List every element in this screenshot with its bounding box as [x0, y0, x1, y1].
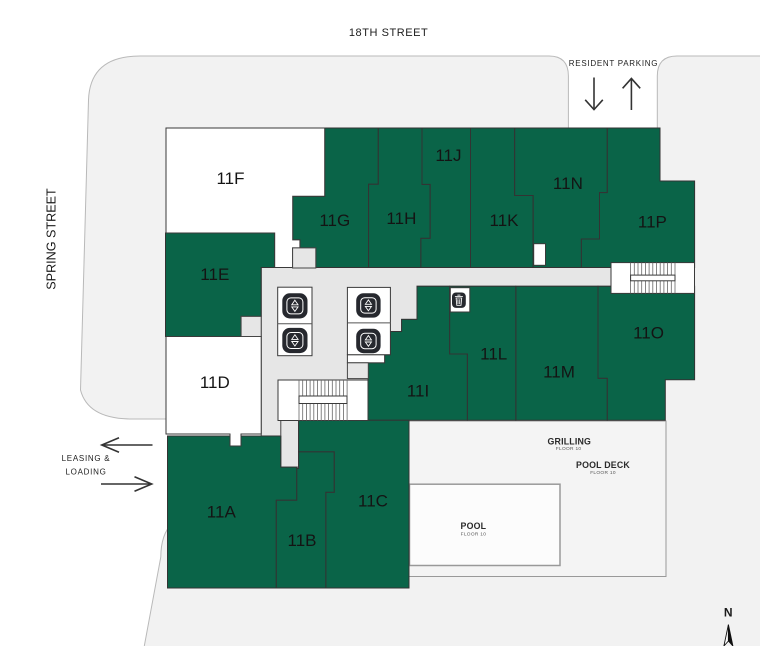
- svg-text:11K: 11K: [490, 211, 520, 230]
- svg-text:18TH STREET: 18TH STREET: [349, 27, 428, 39]
- svg-text:FLOOR 10: FLOOR 10: [590, 470, 616, 476]
- svg-text:11J: 11J: [435, 146, 461, 165]
- svg-text:RESIDENT PARKING: RESIDENT PARKING: [569, 59, 658, 68]
- svg-text:11B: 11B: [288, 531, 317, 550]
- svg-text:11P: 11P: [638, 212, 667, 231]
- svg-text:FLOOR 10: FLOOR 10: [461, 531, 487, 537]
- svg-text:11A: 11A: [207, 503, 237, 522]
- svg-text:SPRING STREET: SPRING STREET: [45, 188, 59, 290]
- svg-text:LOADING: LOADING: [65, 468, 106, 477]
- svg-text:FLOOR 10: FLOOR 10: [556, 446, 582, 452]
- svg-text:11G: 11G: [319, 211, 350, 230]
- svg-text:N: N: [724, 605, 733, 619]
- svg-text:11C: 11C: [358, 491, 388, 510]
- svg-text:POOL: POOL: [461, 521, 487, 531]
- svg-text:11M: 11M: [543, 362, 575, 381]
- svg-text:GRILLING: GRILLING: [547, 437, 591, 447]
- svg-text:LEASING &: LEASING &: [62, 454, 111, 463]
- svg-text:POOL DECK: POOL DECK: [576, 460, 630, 470]
- svg-text:11N: 11N: [553, 174, 583, 193]
- svg-text:11D: 11D: [200, 373, 230, 392]
- svg-text:11H: 11H: [386, 209, 416, 228]
- svg-text:11F: 11F: [216, 169, 244, 188]
- svg-text:11L: 11L: [480, 345, 507, 364]
- svg-text:11I: 11I: [407, 381, 429, 400]
- svg-text:11O: 11O: [633, 323, 664, 342]
- svg-text:11E: 11E: [200, 265, 229, 284]
